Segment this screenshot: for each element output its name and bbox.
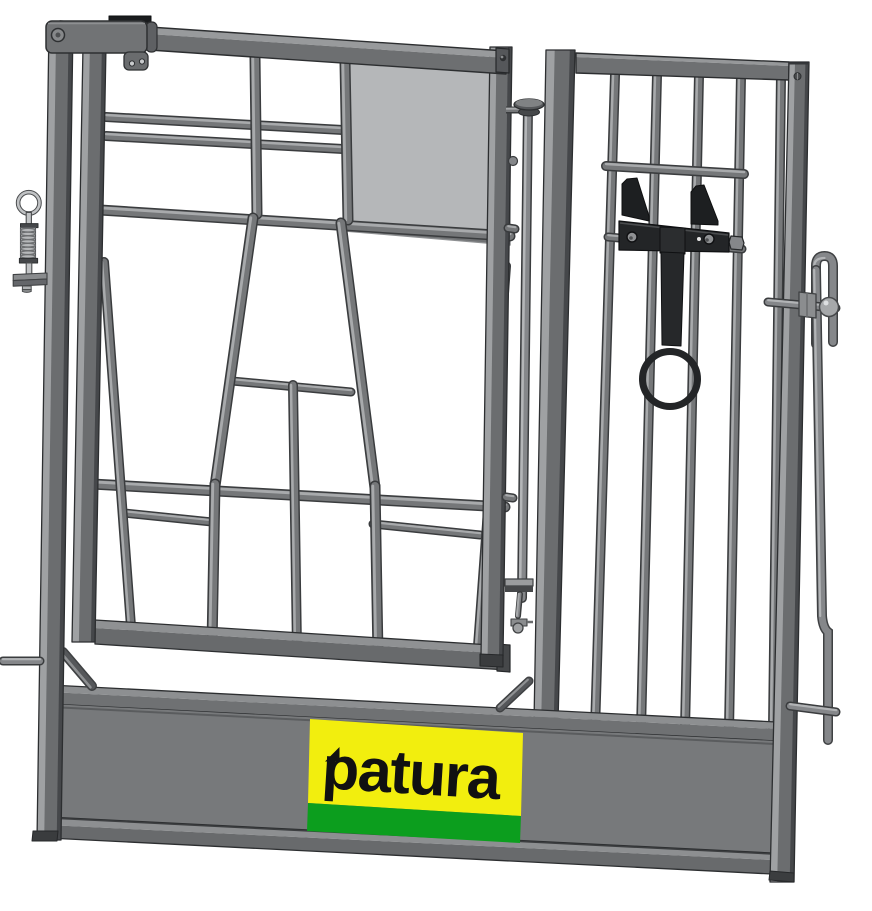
svg-text:patura: patura bbox=[320, 733, 504, 812]
